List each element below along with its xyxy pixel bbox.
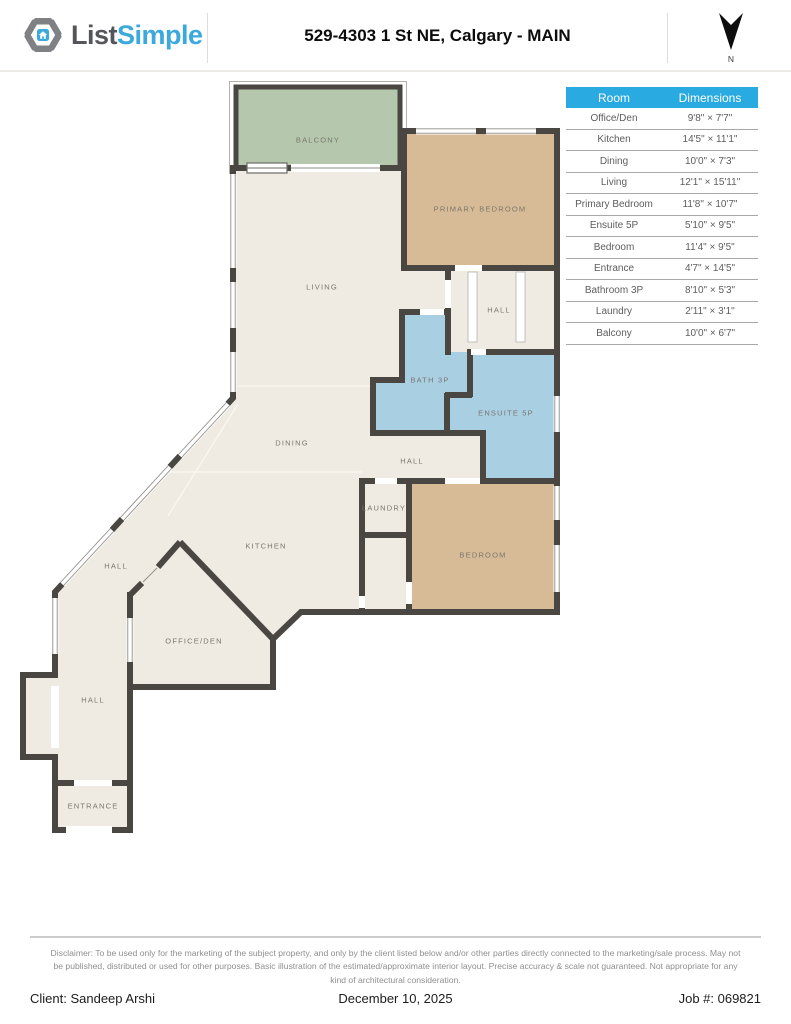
document-date: December 10, 2025 [30,991,761,1006]
room-cell: Office/Den [566,113,662,124]
dims-cell: 12'1" × 15'11" [662,177,758,188]
room-balcony [236,87,400,168]
room-cell: Laundry [566,306,662,317]
table-row: Living12'1" × 15'11" [566,173,758,195]
room-label-hall-mid: HALL [400,457,424,466]
table-row: Kitchen14'5" × 11'1" [566,130,758,152]
dims-cell: 11'8" × 10'7" [662,199,758,210]
room-cell: Primary Bedroom [566,199,662,210]
table-row: Primary Bedroom11'8" × 10'7" [566,194,758,216]
listsimple-logo: ListSimple [22,13,203,57]
room-cell: Bedroom [566,242,662,253]
room-cell: Balcony [566,328,662,339]
room-primary-bedroom [404,131,557,268]
compass: N [711,8,751,66]
disclaimer-text: Disclaimer: To be used only for the mark… [51,947,741,987]
room-cell: Dining [566,156,662,167]
room-cell: Bathroom 3P [566,285,662,296]
table-row: Balcony10'0" × 6'7" [566,323,758,345]
room-label-bedroom: BEDROOM [459,551,506,560]
dims-cell: 9'8" × 7'7" [662,113,758,124]
dims-cell: 11'4" × 9'5" [662,242,758,253]
room-label-laundry: LAUNDRY [362,504,406,513]
room-cell: Entrance [566,263,662,274]
dims-cell: 10'0" × 7'3" [662,156,758,167]
room-cell: Kitchen [566,134,662,145]
header-bottom-border [0,70,791,72]
page-title: 529-4303 1 St NE, Calgary - MAIN [210,0,665,71]
column-header-dimensions: Dimensions [662,91,758,105]
dims-cell: 14'5" × 11'1" [662,134,758,145]
table-row: Ensuite 5P5'10" × 9'5" [566,216,758,238]
logo-wordmark: ListSimple [71,22,203,49]
north-arrow-icon [711,8,751,52]
table-header: Room Dimensions [566,87,758,108]
header: ListSimple 529-4303 1 St NE, Calgary - M… [0,0,791,71]
table-row: Office/Den9'8" × 7'7" [566,108,758,130]
floorplan-document: BALCONY PRIMARY BEDROOM LIVING HALL BATH… [0,0,791,1024]
room-bedroom [409,481,557,612]
table-row: Bedroom11'4" × 9'5" [566,237,758,259]
room-label-office-den: OFFICE/DEN [165,637,222,646]
aperture-house-icon [22,13,64,57]
room-cell: Living [566,177,662,188]
dims-cell: 10'0" × 6'7" [662,328,758,339]
header-divider-right [667,13,668,63]
footer-divider [30,936,761,938]
room-label-living: LIVING [306,283,338,292]
dims-cell: 8'10" × 5'3" [662,285,758,296]
dims-cell: 2'11" × 3'1" [662,306,758,317]
room-cell: Ensuite 5P [566,220,662,231]
column-header-room: Room [566,91,662,105]
compass-north-label: N [711,54,751,64]
room-label-hall-diagonal: HALL [104,562,128,571]
room-label-bath: BATH 3P [410,376,449,385]
room-label-kitchen: KITCHEN [245,542,286,551]
header-divider-left [207,13,208,63]
logo-word-list: List [71,20,117,50]
logo-word-simple: Simple [117,20,203,50]
footer-row: Client: Sandeep Arshi December 10, 2025 … [30,991,761,1011]
job-number: Job #: 069821 [679,991,761,1006]
dims-cell: 4'7" × 14'5" [662,263,758,274]
table-row: Bathroom 3P8'10" × 5'3" [566,280,758,302]
room-label-entrance: ENTRANCE [68,802,119,811]
room-label-primary-bedroom: PRIMARY BEDROOM [434,205,527,214]
dimensions-table: Room Dimensions Office/Den9'8" × 7'7" Ki… [566,87,758,345]
room-label-hall-upper: HALL [487,306,511,315]
room-label-dining: DINING [275,439,308,448]
table-row: Dining10'0" × 7'3" [566,151,758,173]
table-row: Entrance4'7" × 14'5" [566,259,758,281]
room-label-balcony: BALCONY [296,136,340,145]
room-label-ensuite: ENSUITE 5P [478,409,534,418]
dims-cell: 5'10" × 9'5" [662,220,758,231]
table-row: Laundry2'11" × 3'1" [566,302,758,324]
room-label-hall-corridor: HALL [81,696,105,705]
